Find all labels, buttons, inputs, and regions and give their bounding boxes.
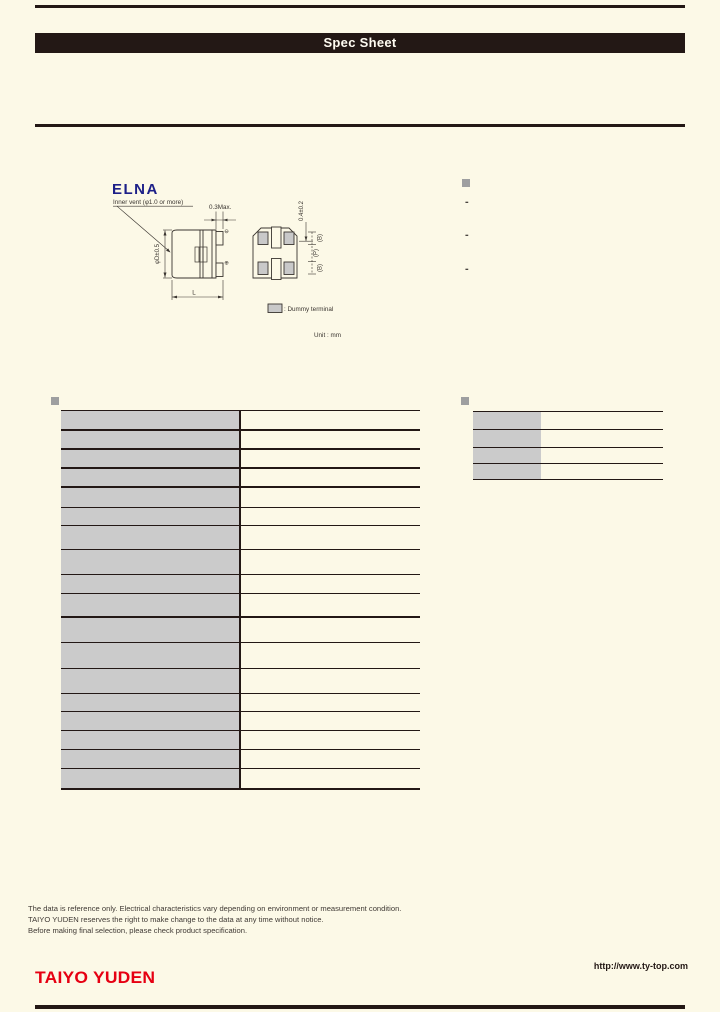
dim-b-bottom-label: (B) [318,264,324,272]
side-view [172,230,223,278]
char-row-label-cell [473,412,541,429]
char-row-label-cell [473,430,541,447]
ty-top-url[interactable]: http://www.ty-top.com [594,961,688,971]
spec-table-row [61,450,420,469]
dummy-terminal-swatch [268,304,282,313]
char-table-row [473,412,663,430]
spec-row-label-cell [61,669,241,693]
disclaimer-line: The data is reference only. Electrical c… [28,903,401,914]
spec-row-label-cell [61,575,241,593]
spec-row-value-cell [241,669,420,693]
spec-row-label-cell [61,643,241,668]
dim-length-label: L [192,290,196,297]
features-section-bullet [462,179,470,187]
spec-table-row [61,731,420,750]
char-row-value-cell [541,412,663,429]
spec-row-value-cell [241,694,420,711]
char-row-value-cell [541,430,663,447]
spec-table-row [61,694,420,712]
spec-row-value-cell [241,488,420,507]
spec-row-label-cell [61,469,241,486]
header-rule [35,124,685,127]
char-table-row [473,430,663,448]
spec-row-label-cell [61,450,241,467]
spec-row-label-cell [61,550,241,574]
dim-b-top-label: (B) [318,234,324,242]
dim-standoff-label: 0.4±0.2 [299,200,305,221]
polarity-minus: ⊖ [224,229,229,235]
spec-table-row [61,508,420,526]
spec-row-label-cell [61,526,241,549]
spec-row-value-cell [241,750,420,768]
spec-row-value-cell [241,594,420,616]
polarity-plus: ⊕ [224,261,229,267]
spec-table-row [61,594,420,618]
spec-row-label-cell [61,594,241,616]
spec-table-row [61,618,420,643]
spec-row-label-cell [61,411,241,429]
spec-row-label-cell [61,750,241,768]
spec-table-row [61,469,420,488]
char-row-value-cell [541,464,663,479]
spec-section-bullet [51,397,59,405]
spec-row-value-cell [241,526,420,549]
spec-row-value-cell [241,450,420,467]
spec-row-value-cell [241,731,420,749]
taiyo-yuden-logo: TAIYO YUDEN [35,969,155,988]
spec-table-row [61,769,420,788]
spec-row-label-cell [61,769,241,788]
spec-row-value-cell [241,550,420,574]
disclaimer-line: TAIYO YUDEN reserves the right to make c… [28,914,401,925]
spec-table-row [61,712,420,731]
spec-table-row [61,431,420,450]
spec-table-row [61,575,420,594]
capacitor-dimension-drawing: Inner vent (φ1.0 or more) ⊖ ⊕ 0.3Max. φD… [100,193,360,345]
spec-row-value-cell [241,618,420,642]
top-rule [35,5,685,8]
char-row-value-cell [541,448,663,463]
spec-row-value-cell [241,431,420,448]
dim-top-label: 0.3Max. [209,204,232,211]
spec-row-value-cell [241,769,420,788]
feature-item-dash: - [465,198,469,206]
spec-table-row [61,550,420,575]
spec-sheet-banner: Spec Sheet [35,33,685,53]
spec-row-value-cell [241,508,420,525]
bottom-rule [35,1005,685,1009]
disclaimer-notes: The data is reference only. Electrical c… [28,903,401,936]
spec-row-label-cell [61,712,241,730]
spec-row-label-cell [61,488,241,507]
dummy-terminal-legend: : Dummy terminal [284,306,333,313]
characteristics-table [473,411,663,480]
inner-vent-label: Inner vent (φ1.0 or more) [113,199,183,206]
spec-row-value-cell [241,643,420,668]
spec-row-label-cell [61,431,241,448]
spec-row-value-cell [241,411,420,429]
feature-item-dash: - [465,231,469,239]
spec-row-value-cell [241,575,420,593]
dim-pitch-label: (P) [314,249,320,257]
char-table-row [473,448,663,464]
bottom-view [253,227,297,280]
char-row-label-cell [473,464,541,479]
spec-table-row [61,643,420,669]
dim-diameter-label: φD±0.5 [155,243,161,264]
spec-table-row [61,488,420,508]
char-row-label-cell [473,448,541,463]
spec-row-label-cell [61,731,241,749]
feature-item-dash: - [465,265,469,273]
spec-table-row [61,526,420,550]
spec-table-row [61,411,420,431]
spec-row-value-cell [241,469,420,486]
char-table-row [473,464,663,480]
spec-table-row [61,750,420,769]
spec-row-label-cell [61,618,241,642]
char-section-bullet [461,397,469,405]
disclaimer-line: Before making final selection, please ch… [28,925,401,936]
unit-label: Unit : mm [314,332,341,339]
specification-table [61,410,420,790]
spec-row-value-cell [241,712,420,730]
spec-table-row [61,669,420,694]
spec-row-label-cell [61,508,241,525]
spec-row-label-cell [61,694,241,711]
